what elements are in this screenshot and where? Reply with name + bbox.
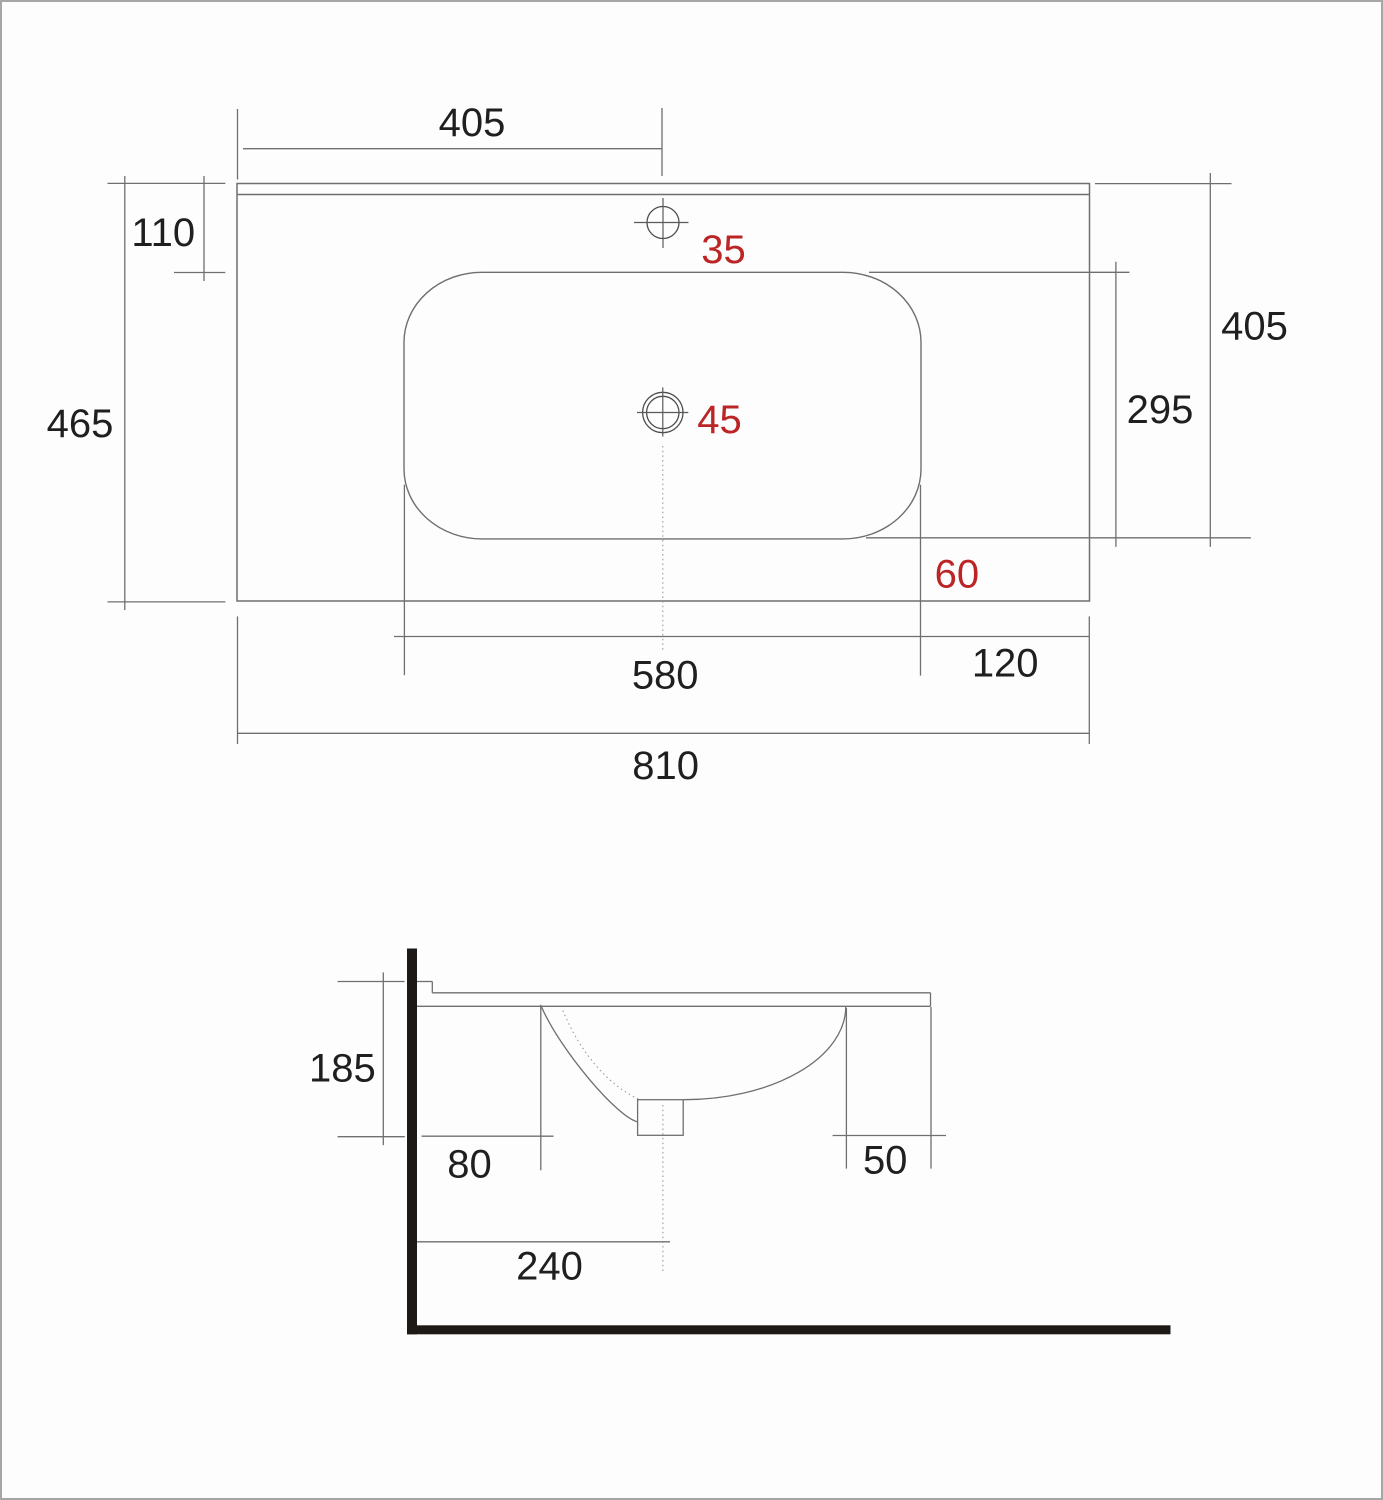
svg-text:240: 240 bbox=[516, 1244, 583, 1288]
svg-text:60: 60 bbox=[935, 552, 980, 596]
svg-text:810: 810 bbox=[632, 744, 699, 788]
svg-text:405: 405 bbox=[439, 101, 506, 145]
svg-text:405: 405 bbox=[1221, 305, 1288, 349]
svg-text:295: 295 bbox=[1127, 388, 1194, 432]
svg-text:465: 465 bbox=[47, 402, 114, 446]
svg-text:50: 50 bbox=[863, 1139, 908, 1183]
svg-text:45: 45 bbox=[697, 398, 742, 442]
svg-text:110: 110 bbox=[131, 211, 195, 255]
svg-text:185: 185 bbox=[309, 1047, 376, 1091]
svg-text:120: 120 bbox=[972, 642, 1039, 686]
svg-text:580: 580 bbox=[632, 654, 699, 698]
svg-text:80: 80 bbox=[447, 1143, 492, 1187]
svg-text:35: 35 bbox=[701, 228, 746, 272]
